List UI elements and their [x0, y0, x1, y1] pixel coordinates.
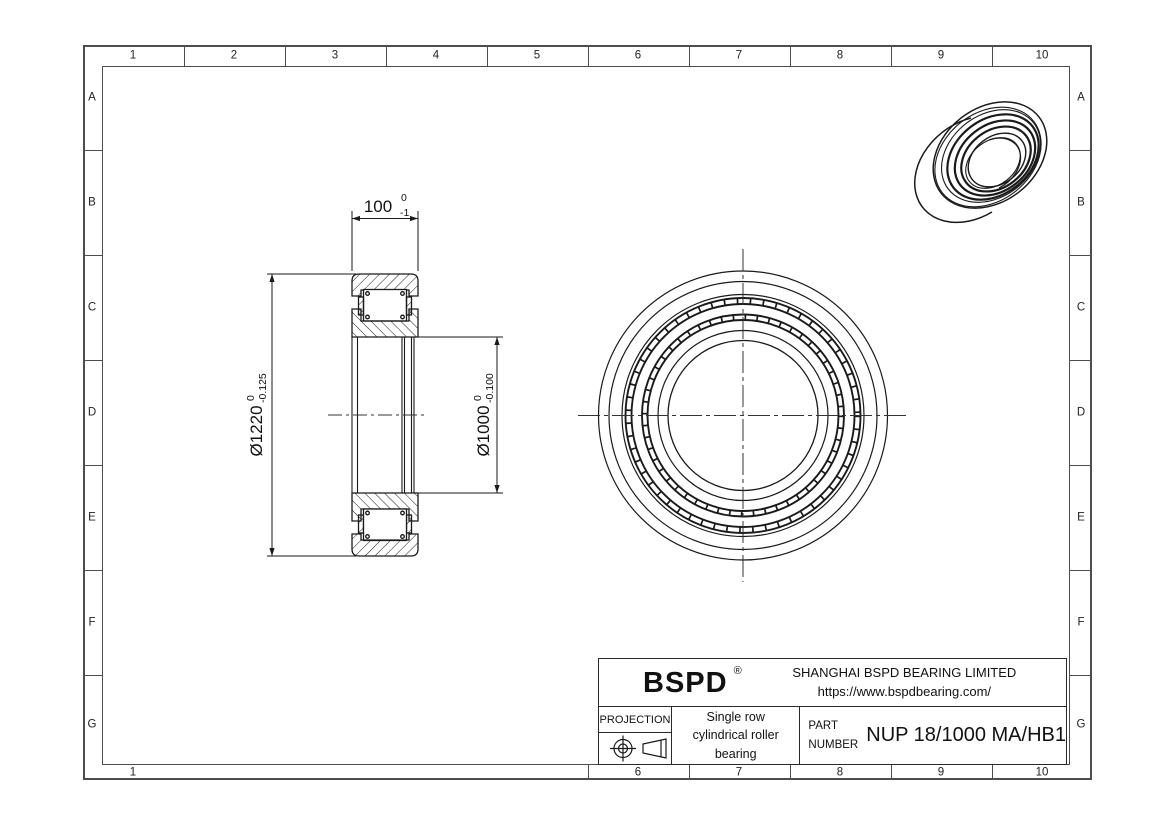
outer-diameter-value: Ø1220 — [247, 405, 266, 456]
part-description-line1: Single row — [707, 708, 765, 726]
projection-cell: PROJECTION — [599, 707, 672, 764]
brand-text: BSPD — [643, 667, 728, 699]
brand-logo: BSPD® — [643, 665, 743, 700]
bore-diameter-tolerance-lower: -0.100 — [484, 373, 496, 403]
drawing-sheet: 1 2 3 4 5 6 7 8 9 10 1 6 7 8 9 10 A B C … — [0, 0, 1169, 826]
part-description: Single row cylindrical roller bearing — [672, 707, 800, 764]
title-block-company-row: BSPD® SHANGHAI BSPD BEARING LIMITED http… — [599, 659, 1066, 707]
isometric-view — [912, 80, 1068, 230]
part-description-line2: cylindrical roller bearing — [672, 726, 799, 762]
front-view — [578, 249, 908, 582]
width-dimension-value: 100 — [364, 197, 392, 216]
part-label-line1: PART — [808, 717, 858, 735]
title-block: BSPD® SHANGHAI BSPD BEARING LIMITED http… — [598, 658, 1067, 765]
part-number-value: NUP 18/1000 MA/HB1 — [866, 724, 1066, 747]
company-website: https://www.bspdbearing.com/ — [743, 683, 1066, 701]
outer-diameter-tolerance-upper: 0 — [245, 395, 257, 401]
registered-trademark-symbol: ® — [734, 665, 743, 677]
outer-diameter-tolerance-lower: -0.125 — [257, 373, 269, 403]
company-name: SHANGHAI BSPD BEARING LIMITED — [743, 664, 1066, 682]
first-angle-projection-icon — [599, 734, 671, 763]
projection-label: PROJECTION — [599, 707, 671, 733]
width-tolerance-lower: -1 — [400, 207, 409, 219]
section-view — [328, 274, 428, 556]
width-tolerance-upper: 0 — [401, 192, 407, 204]
bore-diameter-value: Ø1000 — [474, 405, 493, 456]
part-number-cell: PART NUMBER NUP 18/1000 MA/HB1 — [800, 707, 1066, 764]
part-label-line2: NUMBER — [808, 736, 858, 754]
bore-diameter-tolerance-upper: 0 — [472, 395, 484, 401]
